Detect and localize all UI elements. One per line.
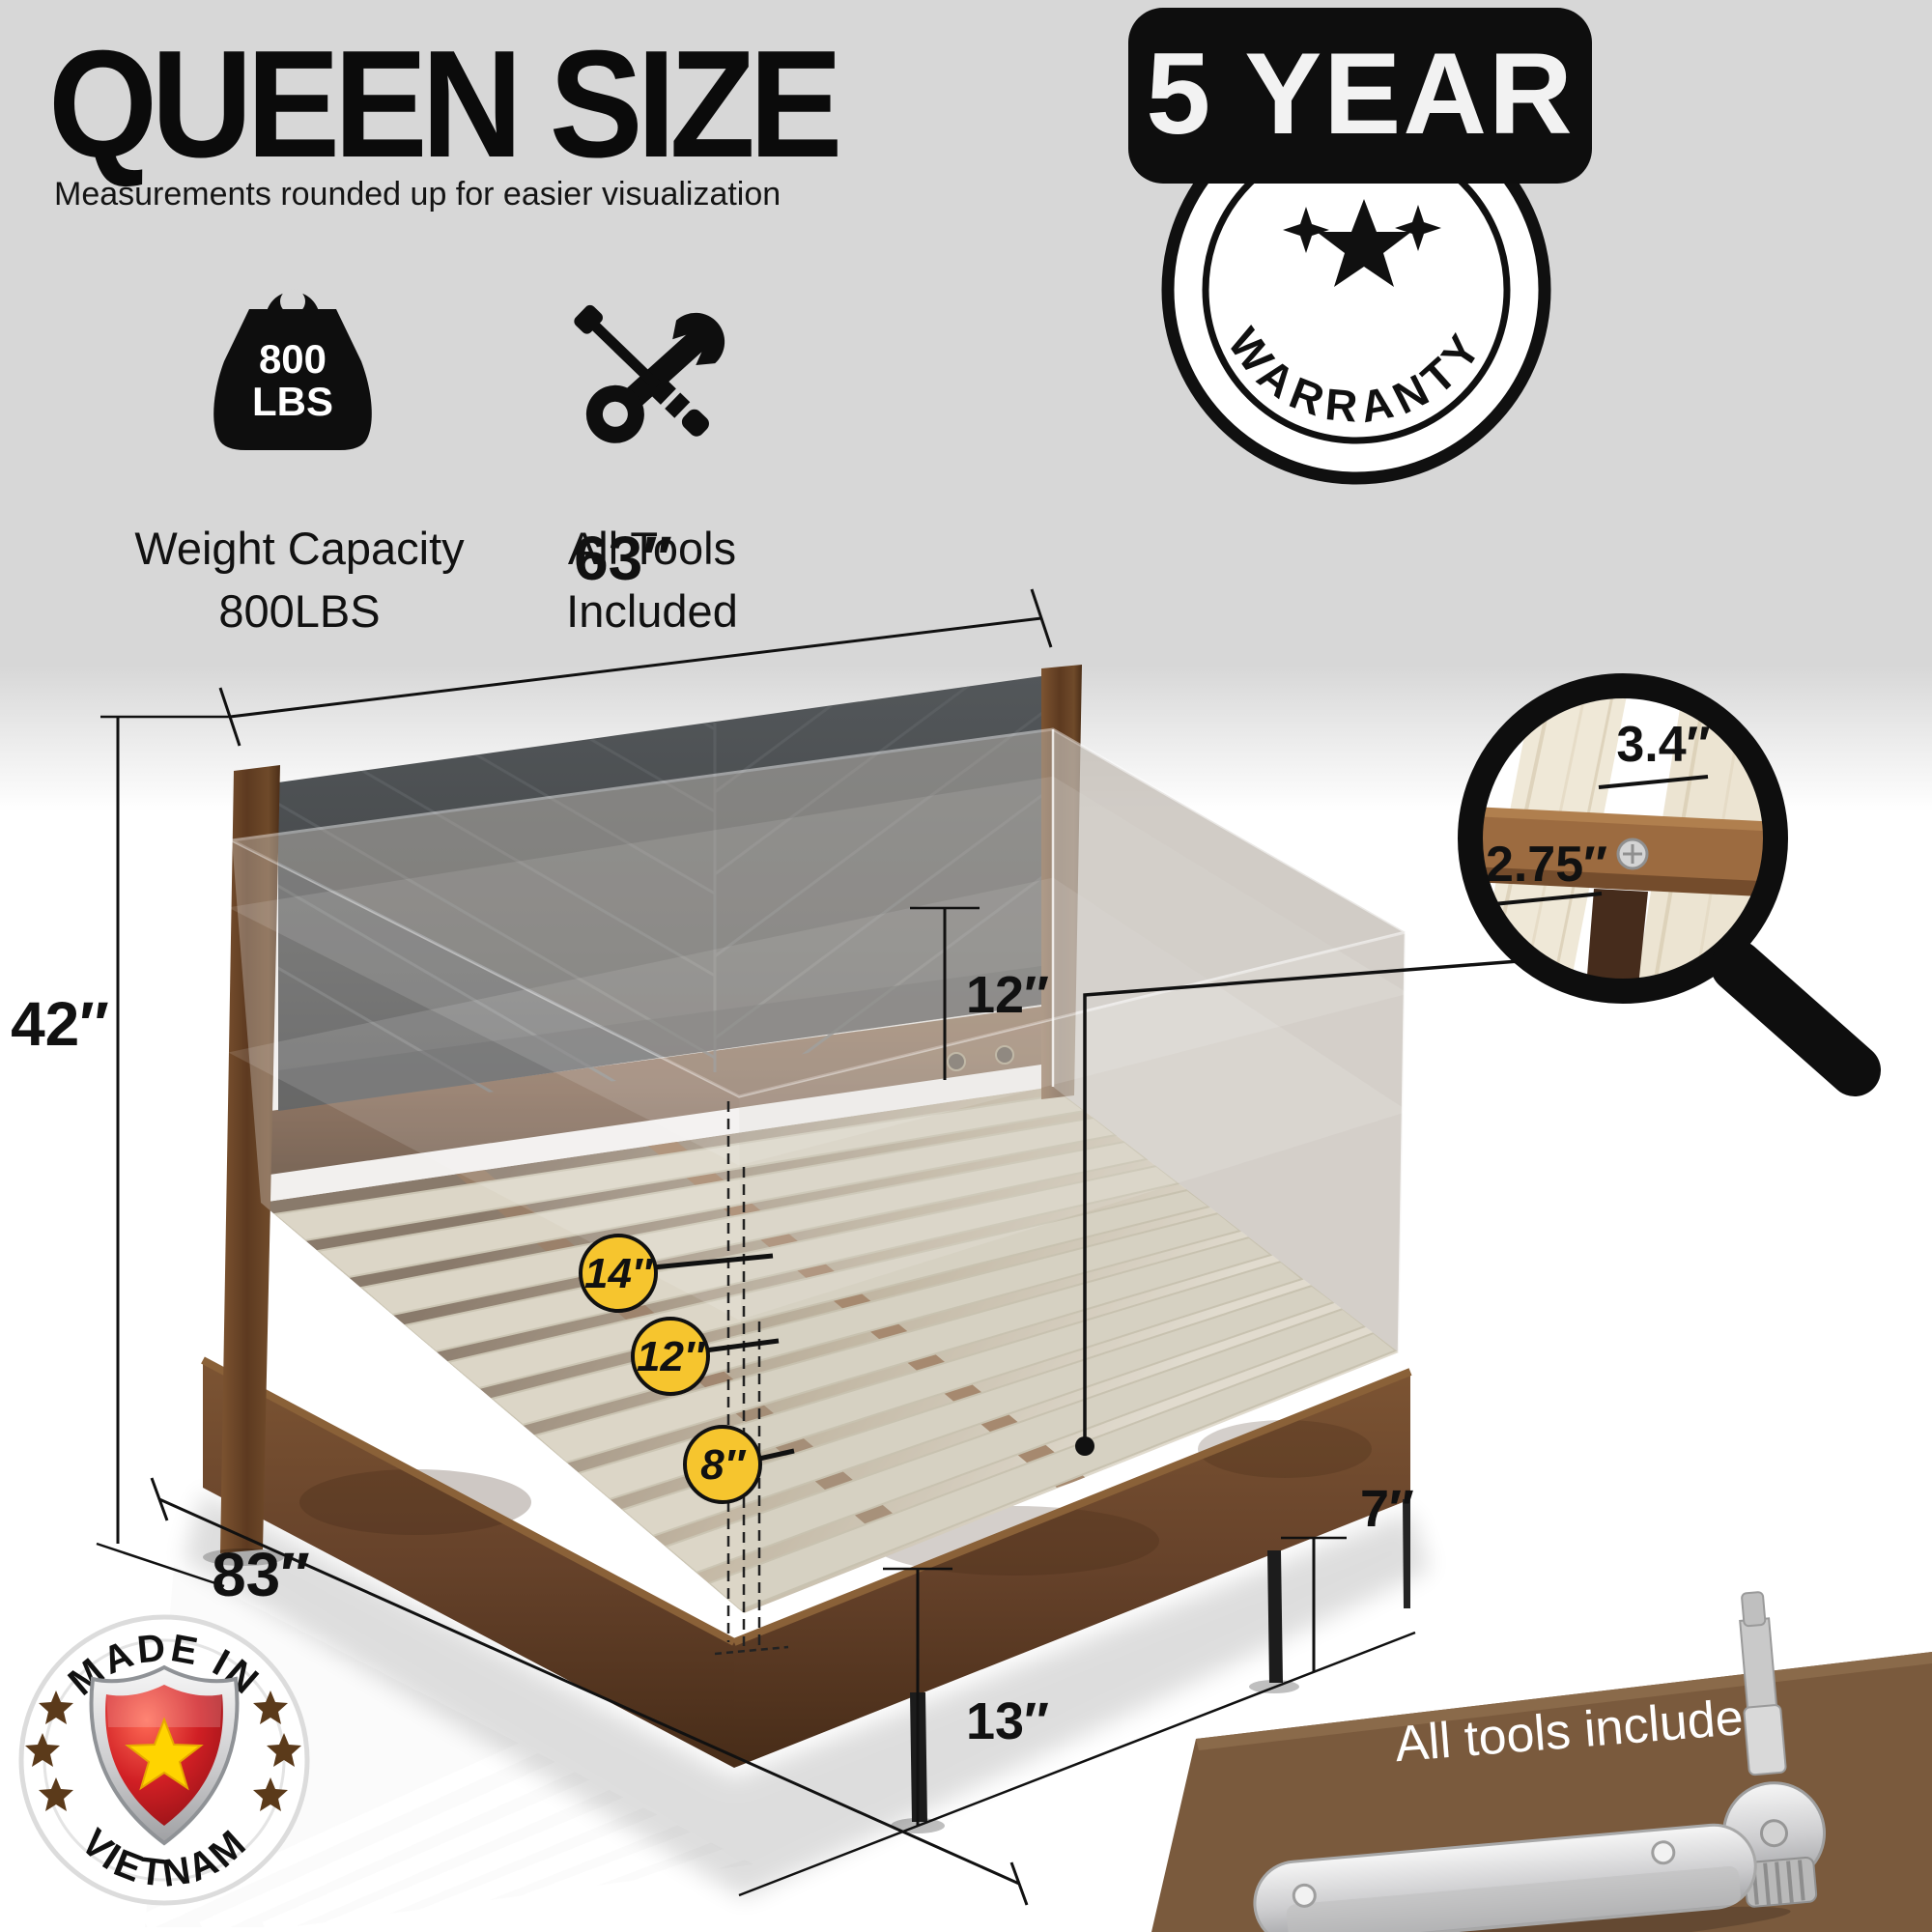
crossed-tools-icon xyxy=(572,300,737,455)
kettlebell-icon: 800 LBS xyxy=(213,289,372,450)
warranty-badge: WARRANTY 5 YEAR xyxy=(1128,8,1592,478)
kettlebell-unit: LBS xyxy=(252,379,333,424)
warranty-banner-text: 5 YEAR xyxy=(1146,29,1574,158)
dim-under-clearance-label: 7″ xyxy=(1360,1480,1414,1538)
dim-height-label: 42″ xyxy=(11,989,109,1059)
mattress-height-8: 8″ xyxy=(700,1441,746,1489)
magnifier: 3.4″ 2.75″ xyxy=(1454,612,1855,1077)
slat-width-label: 2.75″ xyxy=(1486,837,1607,893)
dim-headboard-clearance-label: 12″ xyxy=(966,966,1049,1024)
bed-scene: 14″ 12″ 8″ 63″ 42″ 12″ 83″ 13″ 7″ xyxy=(0,0,1932,1932)
dim-frame-height-label: 13″ xyxy=(966,1692,1049,1750)
dim-length-label: 83″ xyxy=(212,1540,310,1609)
infographic-root: QUEEN SIZE Measurements rounded up for e… xyxy=(0,0,1932,1932)
dim-width-label: 63″ xyxy=(574,524,672,593)
magnifier-handle-icon xyxy=(1737,966,1855,1070)
slat-gap-label: 3.4″ xyxy=(1616,717,1710,773)
origin-badge: MADE IN VIETNAM xyxy=(21,1617,307,1903)
kettlebell-value: 800 xyxy=(259,336,327,382)
mattress-height-12: 12″ xyxy=(637,1333,706,1380)
mattress-height-14: 14″ xyxy=(584,1250,654,1297)
